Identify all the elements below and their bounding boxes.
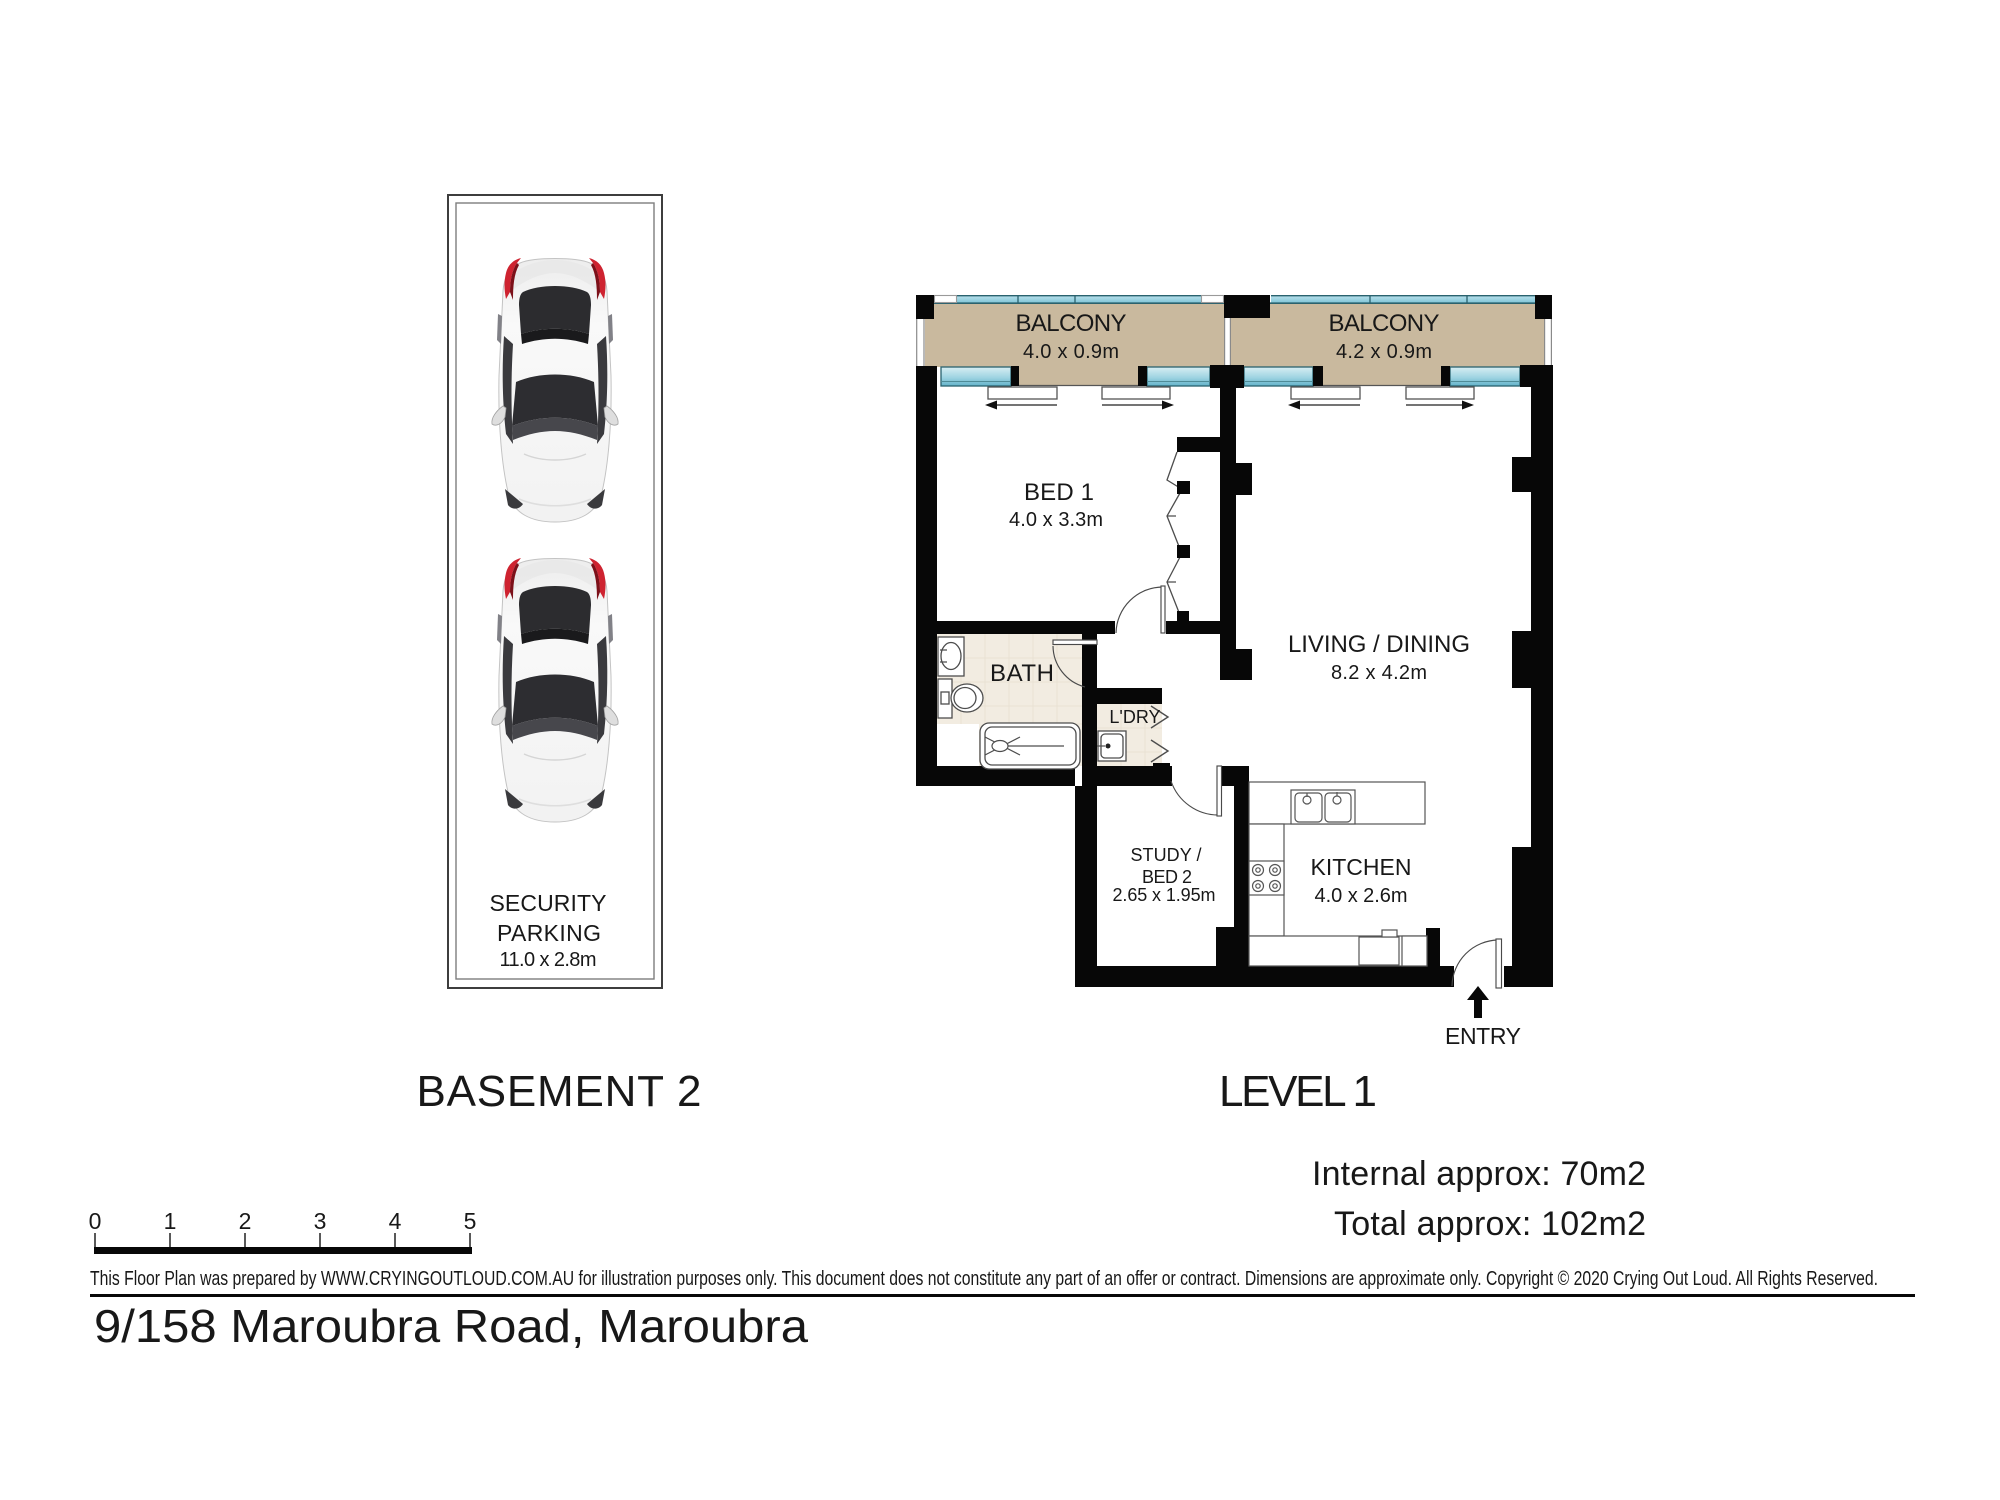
svg-text:4.2 x 0.9m: 4.2 x 0.9m (1336, 341, 1432, 363)
svg-text:BASEMENT 2: BASEMENT 2 (417, 1067, 702, 1116)
svg-text:11.0 x 2.8m: 11.0 x 2.8m (500, 949, 597, 971)
svg-text:5: 5 (464, 1208, 477, 1234)
svg-text:LIVING / DINING: LIVING / DINING (1288, 631, 1470, 658)
svg-text:BATH: BATH (990, 660, 1054, 687)
svg-text:0: 0 (89, 1208, 102, 1234)
svg-text:PARKING: PARKING (497, 920, 601, 946)
svg-text:BED 2: BED 2 (1142, 867, 1192, 887)
svg-text:1: 1 (164, 1208, 177, 1234)
svg-text:ENTRY: ENTRY (1445, 1023, 1521, 1049)
svg-text:4.0 x 2.6m: 4.0 x 2.6m (1315, 885, 1408, 907)
svg-text:Total approx: 102m2: Total approx: 102m2 (1334, 1205, 1646, 1243)
svg-text:4.0 x 3.3m: 4.0 x 3.3m (1009, 509, 1103, 531)
svg-text:LEVEL 1: LEVEL 1 (1219, 1067, 1377, 1116)
svg-text:Internal approx: 70m2: Internal approx: 70m2 (1312, 1155, 1646, 1193)
svg-text:2.65 x 1.95m: 2.65 x 1.95m (1113, 885, 1216, 905)
svg-text:3: 3 (314, 1208, 327, 1234)
svg-text:SECURITY: SECURITY (490, 890, 607, 916)
svg-text:STUDY /: STUDY / (1131, 845, 1202, 865)
svg-text:BALCONY: BALCONY (1016, 310, 1127, 337)
svg-text:2: 2 (239, 1208, 252, 1234)
svg-text:BED 1: BED 1 (1024, 479, 1094, 506)
svg-text:4: 4 (389, 1208, 402, 1234)
svg-text:BALCONY: BALCONY (1329, 310, 1440, 337)
svg-text:KITCHEN: KITCHEN (1311, 854, 1412, 880)
svg-text:This Floor Plan was prepared b: This Floor Plan was prepared by WWW.CRYI… (90, 1268, 1878, 1290)
svg-text:L'DRY: L'DRY (1109, 707, 1160, 727)
svg-text:8.2 x 4.2m: 8.2 x 4.2m (1331, 662, 1427, 684)
svg-text:9/158 Maroubra Road, Maroubra: 9/158 Maroubra Road, Maroubra (94, 1300, 808, 1352)
svg-text:4.0 x 0.9m: 4.0 x 0.9m (1023, 341, 1119, 363)
